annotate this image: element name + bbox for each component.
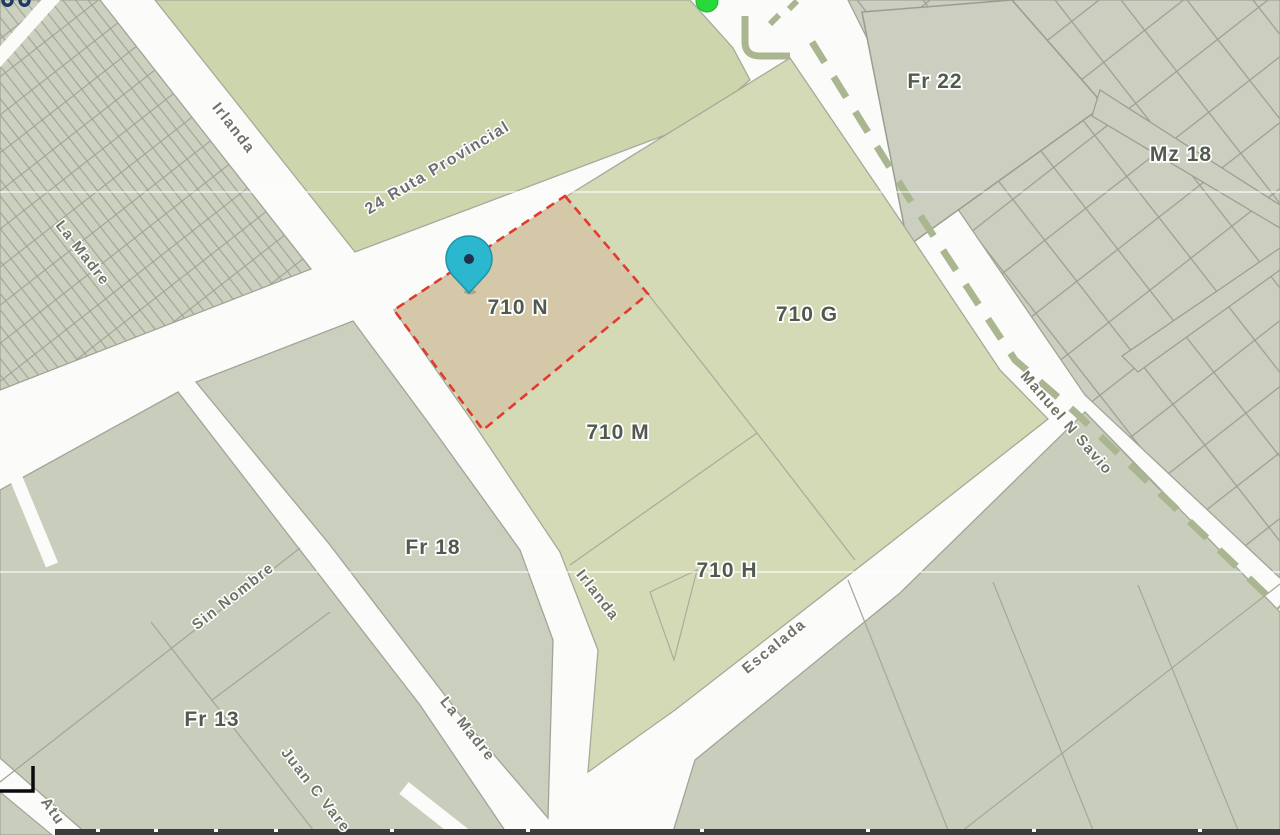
label-710g: 710 G xyxy=(776,303,838,326)
label-fr13: Fr 13 xyxy=(184,708,239,731)
bottom-edge-strip xyxy=(55,829,1280,835)
pin-center-dot xyxy=(464,254,474,264)
label-fr22: Fr 22 xyxy=(907,70,962,93)
label-710n: 710 N xyxy=(487,296,548,319)
label-710m: 710 M xyxy=(586,421,649,444)
cadastral-map-canvas[interactable]: 710 N 710 G 710 M 710 H Fr 22 Mz 18 Fr 1… xyxy=(0,0,1280,835)
map-viewport[interactable]: 710 N 710 G 710 M 710 H Fr 22 Mz 18 Fr 1… xyxy=(0,0,1280,835)
label-mz18: Mz 18 xyxy=(1150,143,1212,166)
label-fr18: Fr 18 xyxy=(405,536,460,559)
label-710h: 710 H xyxy=(696,559,757,582)
